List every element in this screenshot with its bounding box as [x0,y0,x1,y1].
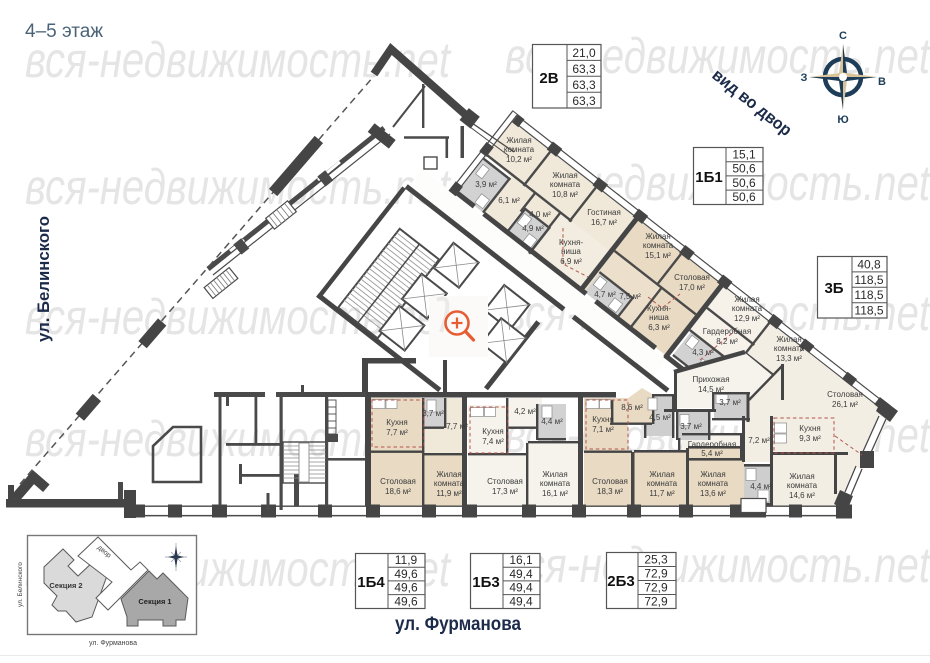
svg-text:72,9: 72,9 [644,581,668,595]
svg-text:4,9 м²: 4,9 м² [522,224,544,233]
svg-text:Столовая: Столовая [487,477,523,486]
svg-text:Жилая: Жилая [789,472,814,481]
svg-text:4,5 м²: 4,5 м² [649,413,671,422]
svg-text:Секция 2: Секция 2 [49,581,82,590]
svg-text:4,2 м²: 4,2 м² [514,407,536,416]
svg-text:ниша: ниша [561,247,581,256]
svg-text:Жилая: Жилая [734,295,759,304]
svg-text:63,3: 63,3 [572,62,596,76]
svg-text:Кухня: Кухня [482,427,503,436]
svg-text:118,5: 118,5 [854,273,883,287]
svg-text:15,1 м²: 15,1 м² [645,251,671,260]
svg-text:8,6 м²: 8,6 м² [621,403,643,412]
svg-text:7,7 м²: 7,7 м² [386,428,408,437]
svg-text:комната: комната [434,479,465,488]
svg-text:1Б1: 1Б1 [695,169,722,186]
svg-text:13,6 м²: 13,6 м² [700,489,726,498]
svg-text:4,4 м²: 4,4 м² [541,417,563,426]
svg-text:40,8: 40,8 [857,257,881,271]
svg-text:Прихожая: Прихожая [692,375,729,384]
svg-text:Жилая: Жилая [552,171,577,180]
svg-text:11,9 м²: 11,9 м² [436,489,462,498]
svg-text:В: В [878,76,886,88]
svg-text:3,9 м²: 3,9 м² [475,180,497,189]
svg-text:комната: комната [540,479,571,488]
svg-text:Гостиная: Гостиная [587,208,621,217]
svg-text:Столовая: Столовая [592,477,628,486]
svg-text:7,1 м²: 7,1 м² [592,425,614,434]
svg-text:7,2 м²: 7,2 м² [748,436,770,445]
svg-text:63,3: 63,3 [572,78,596,92]
svg-text:6,3 м²: 6,3 м² [648,323,670,332]
svg-text:11,7 м²: 11,7 м² [649,489,675,498]
svg-text:7,5 м²: 7,5 м² [619,292,641,301]
svg-text:ниша: ниша [649,313,669,322]
svg-text:21,0: 21,0 [572,46,596,60]
svg-text:комната: комната [647,479,678,488]
svg-text:Жилая: Жилая [776,335,801,344]
svg-text:49,6: 49,6 [394,567,418,581]
svg-text:17,3 м²: 17,3 м² [492,487,518,496]
svg-text:50,6: 50,6 [732,176,756,190]
svg-text:комната: комната [504,145,535,154]
svg-text:Жилая: Жилая [506,136,531,145]
svg-text:13,3 м²: 13,3 м² [776,354,802,363]
svg-text:18,3 м²: 18,3 м² [597,487,623,496]
svg-text:Гардеробная: Гардеробная [688,440,736,449]
svg-text:4,7 м²: 4,7 м² [594,290,616,299]
svg-text:16,7 м²: 16,7 м² [591,218,617,227]
svg-text:14,5 м²: 14,5 м² [698,385,724,394]
svg-text:7,4 м²: 7,4 м² [482,437,504,446]
svg-text:49,6: 49,6 [394,581,418,595]
svg-text:Кухня: Кухня [386,418,407,427]
svg-text:1Б3: 1Б3 [472,574,499,591]
svg-text:ул. Белинского: ул. Белинского [34,216,53,342]
svg-text:3,7 м²: 3,7 м² [719,398,741,407]
svg-text:комната: комната [732,304,763,313]
svg-text:Столовая: Столовая [674,273,710,282]
svg-text:16,1: 16,1 [509,553,533,567]
svg-text:25,3: 25,3 [644,553,668,567]
svg-text:17,0 м²: 17,0 м² [679,283,705,292]
svg-text:12,9 м²: 12,9 м² [734,314,760,323]
svg-text:З: З [801,72,808,84]
svg-text:4,3 м²: 4,3 м² [692,348,714,357]
svg-text:комната: комната [787,481,818,490]
svg-text:50,6: 50,6 [732,190,756,204]
svg-text:4,4 м²: 4,4 м² [750,482,772,491]
svg-text:63,3: 63,3 [572,94,596,108]
svg-text:2В: 2В [539,70,558,87]
svg-text:С: С [839,30,847,42]
svg-text:4,0 м²: 4,0 м² [529,210,551,219]
svg-text:Жилая: Жилая [542,470,567,479]
svg-text:Секция 1: Секция 1 [138,597,171,606]
svg-text:4–5 этаж: 4–5 этаж [25,21,103,42]
svg-text:Жилая: Жилая [645,232,670,241]
svg-text:6,1 м²: 6,1 м² [498,196,520,205]
svg-text:49,4: 49,4 [509,594,533,608]
svg-text:Столовая: Столовая [827,390,863,399]
svg-text:10,2 м²: 10,2 м² [506,155,532,164]
svg-text:Кухня: Кухня [592,415,613,424]
svg-text:72,9: 72,9 [644,595,668,609]
svg-text:26,1 м²: 26,1 м² [832,400,858,409]
svg-text:10,8 м²: 10,8 м² [552,190,578,199]
svg-text:6,9 м²: 6,9 м² [560,257,582,266]
svg-text:9,3 м²: 9,3 м² [799,434,821,443]
svg-text:16,1 м²: 16,1 м² [542,489,568,498]
svg-text:3,7 м²: 3,7 м² [680,422,702,431]
svg-text:ул. Фурманова: ул. Фурманова [395,614,521,635]
svg-text:3,7 м²: 3,7 м² [422,409,444,418]
svg-text:49,6: 49,6 [394,594,418,608]
svg-text:118,5: 118,5 [854,288,883,302]
svg-text:3Б: 3Б [824,280,843,297]
svg-text:8,2 м²: 8,2 м² [716,337,738,346]
svg-text:Гардеробная: Гардеробная [703,327,751,336]
svg-text:Жилая: Жилая [700,470,725,479]
svg-text:49,4: 49,4 [509,567,533,581]
svg-text:вся-недвижимость.net: вся-недвижимость.net [505,537,930,593]
svg-text:2Б3: 2Б3 [607,573,634,590]
svg-text:49,4: 49,4 [509,581,533,595]
svg-text:15,1: 15,1 [732,148,756,162]
svg-text:Кухня-: Кухня- [647,304,671,313]
svg-text:50,6: 50,6 [732,162,756,176]
svg-text:Жилая: Жилая [436,470,461,479]
svg-text:Жилая: Жилая [649,470,674,479]
svg-text:комната: комната [698,479,729,488]
svg-text:комната: комната [643,241,674,250]
svg-text:комната: комната [774,344,805,353]
svg-text:ул. Фурманова: ул. Фурманова [89,640,137,647]
svg-text:18,6 м²: 18,6 м² [385,487,411,496]
svg-text:Кухня-: Кухня- [559,238,583,247]
svg-text:Ю: Ю [837,114,848,126]
svg-text:ул. Белинского: ул. Белинского [17,562,24,607]
svg-text:комната: комната [550,180,581,189]
svg-text:14,6 м²: 14,6 м² [789,491,815,500]
svg-text:Столовая: Столовая [380,477,416,486]
svg-text:72,9: 72,9 [644,567,668,581]
svg-text:118,5: 118,5 [854,304,883,318]
svg-text:Кухня: Кухня [799,424,820,433]
svg-text:7,7 м²: 7,7 м² [446,422,468,431]
svg-text:1Б4: 1Б4 [357,574,385,591]
svg-text:5,4 м²: 5,4 м² [701,449,723,458]
svg-text:11,9: 11,9 [395,553,418,567]
